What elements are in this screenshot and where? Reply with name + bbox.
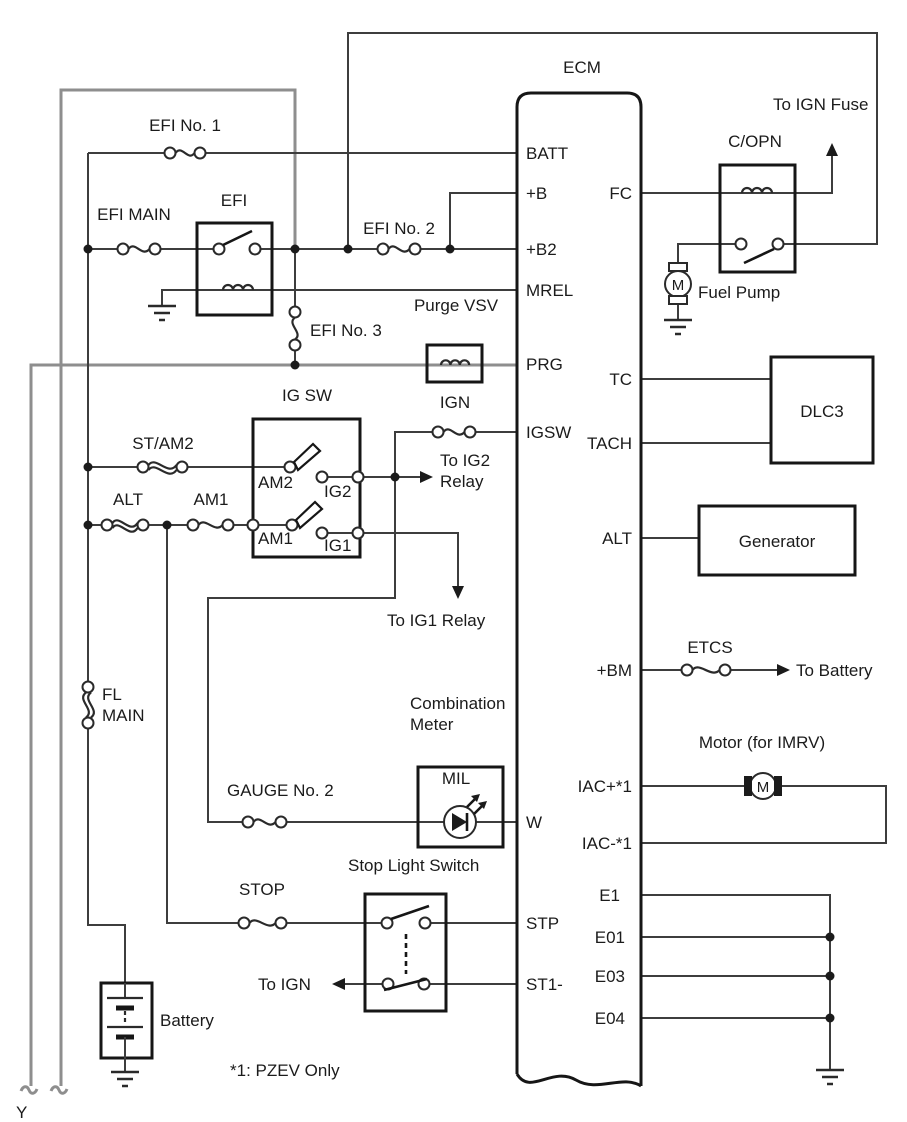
- relay-switch-lever-icon: [744, 249, 774, 263]
- switch-wedge-am1-icon: [296, 502, 322, 528]
- junction-dot: [344, 245, 353, 254]
- e1-ground-wire: [641, 895, 830, 1070]
- pin-label-stp: STP: [526, 914, 559, 933]
- pin-label-e04: E04: [595, 1009, 625, 1028]
- junction-dot: [826, 1014, 835, 1023]
- battery-label: Battery: [160, 1011, 214, 1030]
- terminal-ig1-label: IG1: [324, 536, 351, 555]
- fl-main-label-line1: FL: [102, 685, 122, 704]
- fusible-link-icon: [83, 693, 94, 718]
- arrow-down-icon: [452, 586, 464, 599]
- junction-dot: [826, 933, 835, 942]
- junction-dot: [291, 361, 300, 370]
- mil-label: MIL: [442, 769, 470, 788]
- fuse-icon: [693, 667, 720, 672]
- wiring-diagram-page: ECM BATT +B +B2 MREL PRG IGSW W STP ST1-…: [0, 0, 907, 1122]
- terminal-am2-label: AM2: [258, 473, 293, 492]
- fuse-icon: [199, 522, 223, 527]
- combination-meter: Combination Meter MIL: [410, 694, 505, 847]
- fuse-etcs-label: ETCS: [687, 638, 732, 657]
- combination-meter-line1: Combination: [410, 694, 505, 713]
- to-ign-label: To IGN: [258, 975, 311, 994]
- to-battery-annotation: To Battery: [777, 661, 873, 680]
- ecm-left-pin-labels: BATT +B +B2 MREL PRG IGSW W STP ST1-: [526, 144, 573, 994]
- imrv-motor: Motor (for IMRV) M: [699, 733, 825, 799]
- ground-icon: [664, 320, 692, 334]
- fuse-gauge-no2-label: GAUGE No. 2: [227, 781, 334, 800]
- ground-icon: [816, 1070, 844, 1084]
- junction-dot: [446, 245, 455, 254]
- purge-vsv: Purge VSV: [414, 296, 499, 382]
- motor-bracket-icon: [744, 776, 752, 796]
- fuse-gauge-no2: GAUGE No. 2: [227, 781, 334, 828]
- terminal-am1-label: AM1: [258, 529, 293, 548]
- pin-label-plus-b2: +B2: [526, 240, 557, 259]
- battery: Battery: [101, 983, 214, 1086]
- fuse-icon: [254, 819, 276, 824]
- junction-dot: [391, 473, 400, 482]
- to-ig2-relay-line1: To IG2: [440, 451, 490, 470]
- fusible-link-icon: [149, 462, 177, 473]
- fuse-icon: [292, 318, 297, 340]
- stop-light-switch-label: Stop Light Switch: [348, 856, 479, 875]
- plus-b-wire: [450, 193, 517, 249]
- pin-label-fc: FC: [609, 184, 632, 203]
- junction-dot: [84, 521, 93, 530]
- to-ig1-relay-annotation: To IG1 Relay: [387, 586, 486, 630]
- dlc3-label: DLC3: [800, 402, 843, 421]
- arrow-right-icon: [420, 471, 433, 483]
- fuse-stop: STOP: [239, 880, 287, 929]
- pin-label-bm: +BM: [597, 661, 632, 680]
- junction-dot: [163, 521, 172, 530]
- ecm-right-pin-labels: FC TC TACH ALT +BM IAC+*1 IAC-*1 E1 E01 …: [578, 184, 632, 1028]
- motor-brush-icon: [669, 263, 687, 271]
- junction-dot: [826, 972, 835, 981]
- pin-label-prg: PRG: [526, 355, 563, 374]
- pin-label-plus-b: +B: [526, 184, 547, 203]
- arrow-left-icon: [332, 978, 345, 990]
- purge-vsv-label: Purge VSV: [414, 296, 499, 315]
- to-ign-fuse-label: To IGN Fuse: [773, 95, 868, 114]
- wire-break-hook-icon: [51, 1087, 67, 1094]
- fuse-icon: [250, 920, 276, 925]
- pin-label-st1: ST1-: [526, 975, 563, 994]
- fuse-am1: AM1: [188, 490, 234, 531]
- imrv-motor-letter: M: [757, 779, 770, 796]
- fuse-icon: [176, 150, 195, 155]
- fuse-etcs: ETCS: [682, 638, 733, 676]
- fusible-link-icon: [113, 520, 138, 531]
- pin-label-tc: TC: [609, 370, 632, 389]
- fuse-icon: [129, 246, 150, 251]
- fuse-efi-no2-label: EFI No. 2: [363, 219, 435, 238]
- fuse-icon: [444, 429, 465, 434]
- ig-sw-label: IG SW: [282, 386, 332, 405]
- arrow-right-icon: [777, 664, 790, 676]
- dlc3-block: DLC3: [771, 357, 873, 463]
- fuel-pump-motor-letter: M: [672, 277, 685, 294]
- fusible-link-st-am2: ST/AM2: [132, 434, 193, 474]
- fuse-efi-no3-label: EFI No. 3: [310, 321, 382, 340]
- efi-relay-outline: [197, 223, 272, 315]
- copn-label: C/OPN: [728, 132, 782, 151]
- arrow-up-icon: [826, 143, 838, 156]
- motor-bracket-icon: [774, 776, 782, 796]
- pin-label-batt: BATT: [526, 144, 568, 163]
- to-ig2-relay-annotation: To IG2 Relay: [420, 451, 490, 491]
- gray-wire-left-branch: [61, 90, 295, 1086]
- fuse-ign: IGN: [433, 393, 476, 438]
- fusible-link-st-am2-label: ST/AM2: [132, 434, 193, 453]
- pin-label-e03: E03: [595, 967, 625, 986]
- fuse-am1-label: AM1: [194, 490, 229, 509]
- fuse-efi-main-label: EFI MAIN: [97, 205, 171, 224]
- switch-wedge-am2-icon: [294, 444, 320, 470]
- fuse-efi-no3: EFI No. 3: [290, 307, 382, 351]
- generator-block: Generator: [699, 506, 855, 575]
- gray-harness-wires: [21, 90, 517, 1093]
- ig1-output-wire: [364, 533, 459, 587]
- fuel-pump: M Fuel Pump: [664, 263, 780, 334]
- pin-label-w: W: [526, 813, 542, 832]
- to-ig1-relay-label: To IG1 Relay: [387, 611, 486, 630]
- page-connector-label: Y: [16, 1103, 27, 1122]
- generator-label: Generator: [739, 532, 816, 551]
- efi-relay-label: EFI: [221, 191, 247, 210]
- pin-label-e1: E1: [599, 886, 620, 905]
- ecm-block: ECM BATT +B +B2 MREL PRG IGSW W STP ST1-…: [517, 58, 641, 1086]
- ground-icon: [111, 1072, 139, 1086]
- fuse-efi-no1-label: EFI No. 1: [149, 116, 221, 135]
- junction-dot: [84, 463, 93, 472]
- to-battery-label: To Battery: [796, 661, 873, 680]
- ground-icon: [148, 306, 176, 320]
- battery-feed-wire: [88, 153, 125, 983]
- pin-label-iac-minus: IAC-*1: [582, 834, 632, 853]
- stop-light-switch: Stop Light Switch: [348, 856, 479, 1011]
- to-ign-annotation: To IGN: [258, 975, 345, 994]
- battery-outline: [101, 983, 152, 1058]
- fuse-ign-label: IGN: [440, 393, 470, 412]
- fl-main-label-line2: MAIN: [102, 706, 145, 725]
- junction-dot: [291, 245, 300, 254]
- pin-label-tach: TACH: [587, 434, 632, 453]
- motor-brush-icon: [669, 296, 687, 304]
- ecm-wiring-diagram: ECM BATT +B +B2 MREL PRG IGSW W STP ST1-…: [0, 0, 907, 1122]
- pin-label-alt: ALT: [602, 529, 632, 548]
- pzev-note: *1: PZEV Only: [230, 1061, 340, 1080]
- wire-break-hook-icon: [21, 1087, 37, 1094]
- copn-relay: C/OPN: [720, 132, 795, 272]
- fuse-efi-main: EFI MAIN: [97, 205, 171, 255]
- pin-label-e01: E01: [595, 928, 625, 947]
- combination-meter-line2: Meter: [410, 715, 454, 734]
- fuse-icon: [389, 246, 410, 251]
- ecm-torn-bottom-edge: [517, 1074, 641, 1086]
- terminal-ig2-label: IG2: [324, 482, 351, 501]
- fuse-stop-label: STOP: [239, 880, 285, 899]
- to-ig2-relay-line2: Relay: [440, 472, 484, 491]
- pin-label-iac-plus: IAC+*1: [578, 777, 632, 796]
- fusible-link-alt-label: ALT: [113, 490, 143, 509]
- motor-imrv-label: Motor (for IMRV): [699, 733, 825, 752]
- fc-wire: [641, 155, 832, 193]
- relay-switch-lever-icon: [223, 231, 252, 245]
- ecm-title: ECM: [563, 58, 601, 77]
- fusible-link-fl-main: FL MAIN: [83, 682, 145, 729]
- fusible-link-alt: ALT: [102, 490, 149, 532]
- junction-dot: [84, 245, 93, 254]
- fuel-pump-label: Fuel Pump: [698, 283, 780, 302]
- pin-label-igsw: IGSW: [526, 423, 571, 442]
- ignition-switch: IG SW AM2 IG2 AM1 IG1: [248, 386, 364, 557]
- pin-label-mrel: MREL: [526, 281, 573, 300]
- to-ign-fuse-annotation: To IGN Fuse: [773, 95, 868, 156]
